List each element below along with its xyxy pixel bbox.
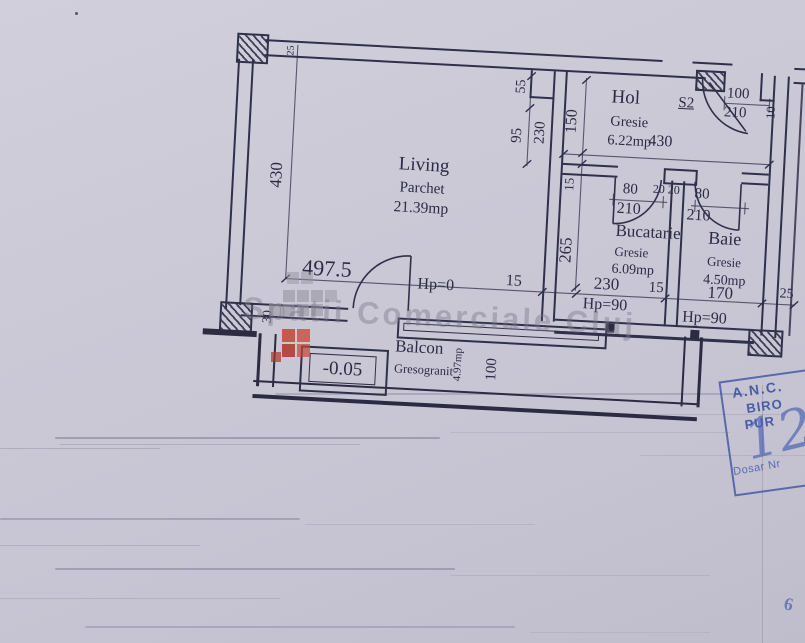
paper-speck (75, 12, 78, 15)
room-baie-name: Baie (708, 229, 742, 249)
dim-mid-150: 150 (564, 109, 581, 134)
scan-streak (530, 632, 710, 633)
wall-section-entry (695, 70, 726, 93)
dim-entry-height: 210 (724, 105, 747, 121)
scan-streak (450, 575, 710, 576)
dim-wall-top: 25 (286, 45, 297, 56)
watermark-logo-cell (301, 272, 313, 284)
room-hol-finish: Gresie (610, 114, 649, 130)
scan-streak (55, 568, 455, 570)
scan-streak (305, 524, 535, 525)
scan-streak (0, 448, 160, 449)
watermark-logo-cell-red (271, 352, 281, 362)
dim-buc-width: 230 (593, 275, 619, 293)
balcony-wall-right (680, 336, 703, 407)
handwritten-corner-mark: 6 (782, 593, 795, 615)
room-hol-area: 6.22mp (607, 133, 652, 150)
watermark-logo-cell (287, 272, 299, 284)
dim-living-height: 430 (267, 162, 285, 188)
watermark-logo-cell-red (282, 329, 295, 342)
hp-living-label: Hp=0 (417, 276, 454, 294)
scanned-floor-plan-page: -0.05 Living Parchet 21.39mp Hol Gresie … (0, 0, 805, 643)
dim-buc-15: 15 (648, 281, 664, 297)
dim-right-25: 25 (779, 287, 794, 302)
dim-stub-a: 20 (653, 183, 666, 196)
watermark-logo-cell-red (282, 344, 295, 357)
dim-baie-door: 80 (694, 187, 710, 203)
dim-mid-265: 265 (556, 237, 574, 263)
room-balcon-name: Balcon (395, 337, 444, 356)
dim-baie-door-h: 210 (686, 207, 711, 224)
dim-mid-230: 230 (533, 121, 549, 144)
room-balcon-finish: Gresogranit (394, 362, 454, 378)
dim-bottom-15: 15 (505, 273, 522, 290)
scan-streak (0, 545, 200, 546)
dim-hol-width: 430 (648, 133, 673, 150)
room-bucatarie-name: Bucatarie (615, 222, 681, 242)
dim-stub-b: 20 (668, 183, 681, 196)
room-living-finish: Parchet (399, 180, 445, 197)
watermark-logo-cell-red (297, 329, 310, 342)
room-living-name: Living (398, 154, 450, 176)
room-living-area: 21.39mp (393, 199, 448, 217)
room-hol-name: Hol (611, 87, 640, 107)
watermark-logo-cell-red (297, 344, 310, 357)
room-bucatarie-finish: Gresie (614, 245, 649, 260)
room-balcon-area: 4.97mp (452, 348, 465, 382)
level-marker-box-inner: -0.05 (308, 353, 376, 385)
dim-mid-55: 55 (515, 79, 530, 94)
dim-balcon-depth: 100 (484, 358, 500, 381)
dim-buc-door-h: 210 (616, 201, 641, 218)
scan-streak (85, 626, 515, 628)
room-baie-finish: Gresie (707, 255, 742, 270)
scan-streak (60, 444, 360, 445)
dim-entry-width: 100 (727, 86, 750, 102)
dim-mid-15: 15 (562, 177, 576, 191)
dim-entry-jamb: 10 (764, 106, 777, 119)
level-value: -0.05 (322, 358, 363, 381)
scan-streak (0, 598, 280, 599)
floor-plan: -0.05 Living Parchet 21.39mp Hol Gresie … (142, 11, 805, 465)
dim-buc-door: 80 (622, 182, 638, 198)
dim-mid-95: 95 (510, 128, 526, 144)
unit-label: S2 (678, 96, 695, 112)
dim-baie-width: 170 (707, 284, 733, 302)
scan-streak (0, 518, 300, 520)
